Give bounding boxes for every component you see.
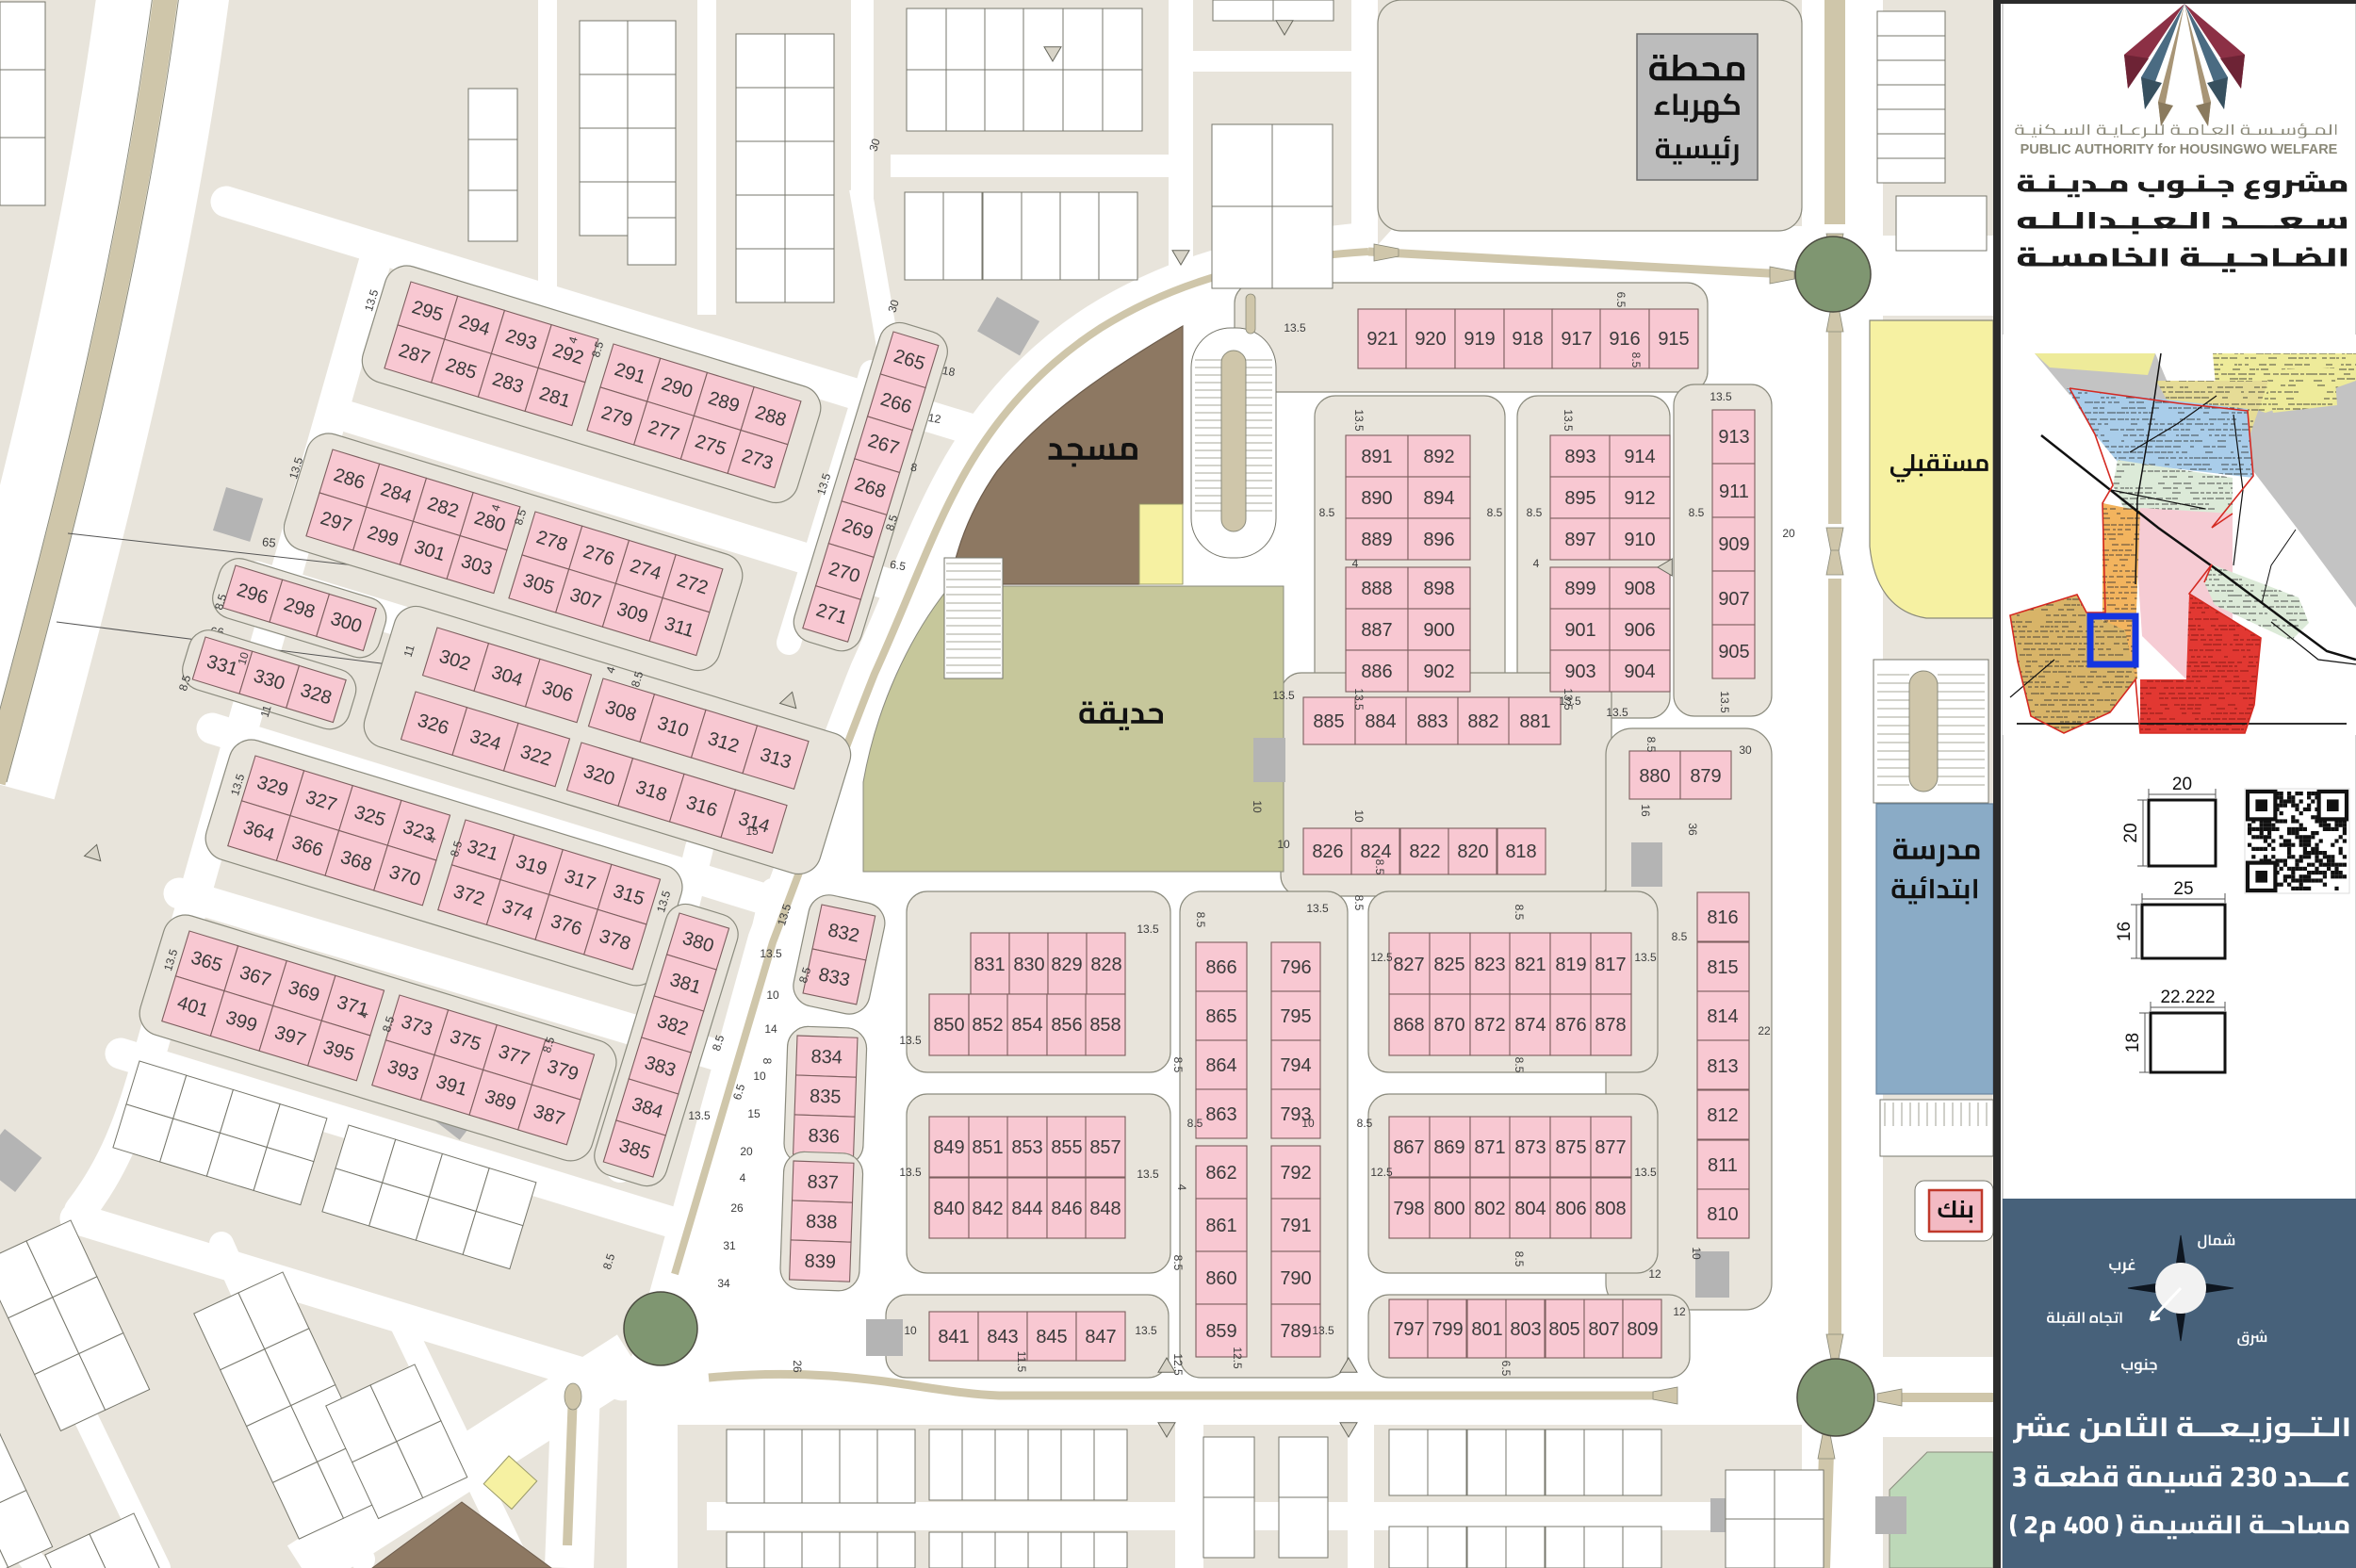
svg-text:825: 825 — [1433, 955, 1464, 975]
svg-text:10: 10 — [1690, 1247, 1703, 1260]
svg-text:846: 846 — [1051, 1199, 1082, 1219]
svg-text:878: 878 — [1595, 1015, 1626, 1036]
svg-text:26: 26 — [791, 1360, 804, 1373]
svg-text:13.5: 13.5 — [1352, 688, 1366, 710]
svg-text:13.5: 13.5 — [1352, 409, 1366, 432]
svg-text:8.5: 8.5 — [1171, 1057, 1185, 1073]
svg-text:802: 802 — [1474, 1199, 1505, 1219]
svg-text:8.5: 8.5 — [1487, 506, 1503, 519]
svg-text:893: 893 — [1564, 447, 1595, 467]
svg-text:815: 815 — [1707, 957, 1738, 978]
svg-text:795: 795 — [1280, 1006, 1311, 1027]
svg-text:20: 20 — [740, 1145, 753, 1158]
svg-text:12.5: 12.5 — [1370, 1166, 1393, 1179]
svg-text:822: 822 — [1409, 841, 1440, 862]
svg-text:897: 897 — [1564, 530, 1595, 550]
svg-text:813: 813 — [1707, 1056, 1738, 1077]
svg-text:844: 844 — [1011, 1199, 1042, 1219]
svg-text:820: 820 — [1457, 841, 1488, 862]
svg-text:854: 854 — [1011, 1015, 1042, 1036]
svg-text:16: 16 — [1639, 804, 1652, 817]
svg-text:915: 915 — [1658, 329, 1689, 350]
svg-text:20: 20 — [2121, 823, 2141, 842]
svg-text:6.5: 6.5 — [889, 558, 907, 574]
svg-text:920: 920 — [1415, 329, 1446, 350]
svg-text:839: 839 — [804, 1250, 836, 1272]
svg-text:13.5: 13.5 — [1634, 1166, 1657, 1179]
svg-text:799: 799 — [1432, 1319, 1463, 1340]
svg-text:13.5: 13.5 — [1137, 1168, 1159, 1181]
svg-text:10: 10 — [904, 1324, 917, 1337]
svg-text:789: 789 — [1280, 1321, 1311, 1342]
svg-text:819: 819 — [1555, 955, 1586, 975]
svg-text:805: 805 — [1548, 1319, 1579, 1340]
svg-text:913: 913 — [1718, 427, 1749, 448]
svg-text:885: 885 — [1313, 711, 1344, 732]
svg-text:858: 858 — [1089, 1015, 1121, 1036]
svg-text:8.5: 8.5 — [1187, 1117, 1203, 1130]
svg-text:874: 874 — [1514, 1015, 1546, 1036]
svg-text:798: 798 — [1393, 1199, 1424, 1219]
svg-text:865: 865 — [1205, 1006, 1236, 1027]
svg-text:828: 828 — [1090, 955, 1121, 975]
svg-text:879: 879 — [1690, 766, 1721, 787]
svg-text:12.5: 12.5 — [1231, 1347, 1244, 1369]
svg-text:882: 882 — [1467, 711, 1498, 732]
svg-text:821: 821 — [1514, 955, 1546, 975]
svg-text:831: 831 — [973, 955, 1005, 975]
svg-text:823: 823 — [1474, 955, 1505, 975]
svg-text:12: 12 — [1648, 1267, 1661, 1281]
svg-text:864: 864 — [1205, 1055, 1236, 1076]
svg-text:809: 809 — [1627, 1319, 1658, 1340]
svg-text:872: 872 — [1474, 1015, 1505, 1036]
svg-text:30: 30 — [1739, 743, 1752, 757]
svg-text:857: 857 — [1089, 1137, 1121, 1158]
svg-text:884: 884 — [1365, 711, 1396, 732]
svg-text:13.5: 13.5 — [688, 1109, 711, 1122]
svg-text:870: 870 — [1433, 1015, 1464, 1036]
svg-text:911: 911 — [1719, 482, 1749, 502]
svg-text:848: 848 — [1089, 1199, 1121, 1219]
svg-text:792: 792 — [1280, 1163, 1311, 1184]
svg-text:817: 817 — [1595, 955, 1626, 975]
svg-text:873: 873 — [1514, 1137, 1546, 1158]
svg-text:12: 12 — [1673, 1305, 1686, 1318]
svg-text:13.5: 13.5 — [899, 1166, 922, 1179]
svg-text:13.5: 13.5 — [1606, 706, 1628, 719]
svg-text:4: 4 — [1352, 557, 1359, 570]
svg-text:896: 896 — [1423, 530, 1454, 550]
svg-text:856: 856 — [1051, 1015, 1082, 1036]
svg-text:891: 891 — [1361, 447, 1392, 467]
svg-text:807: 807 — [1588, 1319, 1619, 1340]
svg-text:919: 919 — [1464, 329, 1495, 350]
svg-text:918: 918 — [1512, 329, 1543, 350]
svg-text:806: 806 — [1555, 1199, 1586, 1219]
svg-text:917: 917 — [1561, 329, 1592, 350]
svg-text:881: 881 — [1519, 711, 1550, 732]
svg-text:13.5: 13.5 — [760, 947, 782, 960]
svg-text:13.5: 13.5 — [1135, 1324, 1157, 1337]
svg-text:14: 14 — [764, 1022, 777, 1036]
svg-text:841: 841 — [938, 1327, 969, 1347]
svg-text:26: 26 — [730, 1201, 744, 1215]
svg-text:847: 847 — [1085, 1327, 1116, 1347]
svg-text:861: 861 — [1205, 1216, 1236, 1236]
svg-text:862: 862 — [1205, 1163, 1236, 1184]
svg-text:855: 855 — [1051, 1137, 1082, 1158]
svg-text:867: 867 — [1393, 1137, 1424, 1158]
svg-text:886: 886 — [1361, 661, 1392, 682]
svg-text:8.5: 8.5 — [1644, 737, 1658, 753]
svg-text:851: 851 — [972, 1137, 1003, 1158]
svg-text:902: 902 — [1423, 661, 1454, 682]
svg-text:13.5: 13.5 — [1634, 951, 1657, 964]
svg-text:894: 894 — [1423, 488, 1454, 509]
svg-text:10: 10 — [1301, 1117, 1315, 1130]
svg-text:901: 901 — [1564, 620, 1595, 641]
svg-text:877: 877 — [1595, 1137, 1626, 1158]
svg-text:8.5: 8.5 — [1357, 1117, 1373, 1130]
svg-text:868: 868 — [1393, 1015, 1424, 1036]
svg-text:804: 804 — [1514, 1199, 1546, 1219]
svg-text:15: 15 — [747, 1107, 761, 1120]
svg-text:837: 837 — [807, 1172, 839, 1194]
svg-text:22: 22 — [1758, 1024, 1771, 1037]
svg-text:812: 812 — [1707, 1105, 1738, 1126]
svg-text:800: 800 — [1433, 1199, 1464, 1219]
svg-text:8.5: 8.5 — [1527, 506, 1543, 519]
svg-text:10: 10 — [753, 1070, 766, 1083]
svg-text:835: 835 — [810, 1086, 842, 1108]
svg-text:816: 816 — [1707, 907, 1738, 928]
svg-text:796: 796 — [1280, 957, 1311, 978]
svg-text:853: 853 — [1011, 1137, 1042, 1158]
svg-text:18: 18 — [941, 364, 957, 379]
svg-text:880: 880 — [1639, 766, 1670, 787]
svg-text:8.5: 8.5 — [1513, 905, 1526, 921]
svg-text:905: 905 — [1718, 642, 1749, 662]
svg-text:883: 883 — [1416, 711, 1448, 732]
svg-text:836: 836 — [808, 1125, 840, 1147]
svg-text:8.5: 8.5 — [1513, 1057, 1526, 1073]
svg-text:852: 852 — [972, 1015, 1003, 1036]
svg-text:11.5: 11.5 — [1015, 1351, 1028, 1373]
svg-text:8.5: 8.5 — [1194, 912, 1207, 928]
svg-text:895: 895 — [1564, 488, 1595, 509]
svg-text:914: 914 — [1624, 447, 1655, 467]
svg-text:4: 4 — [1175, 1184, 1188, 1191]
svg-text:20: 20 — [2172, 775, 2192, 794]
svg-text:890: 890 — [1361, 488, 1392, 509]
svg-text:8.5: 8.5 — [1352, 895, 1366, 911]
svg-text:912: 912 — [1624, 488, 1655, 509]
svg-text:829: 829 — [1051, 955, 1082, 975]
svg-text:849: 849 — [933, 1137, 964, 1158]
svg-text:12.5: 12.5 — [1370, 951, 1393, 964]
svg-text:900: 900 — [1423, 620, 1454, 641]
svg-text:887: 887 — [1361, 620, 1392, 641]
svg-text:10: 10 — [766, 988, 779, 1002]
svg-text:4: 4 — [1533, 557, 1540, 570]
svg-text:8.5: 8.5 — [1629, 352, 1643, 368]
svg-text:834: 834 — [810, 1047, 843, 1069]
svg-text:10: 10 — [1352, 809, 1366, 823]
svg-text:36: 36 — [1686, 823, 1699, 836]
svg-text:840: 840 — [933, 1199, 964, 1219]
svg-text:13.5: 13.5 — [1718, 691, 1731, 713]
svg-text:850: 850 — [933, 1015, 964, 1036]
svg-text:916: 916 — [1609, 329, 1640, 350]
svg-text:876: 876 — [1555, 1015, 1586, 1036]
svg-text:13.5: 13.5 — [1272, 689, 1295, 702]
svg-text:863: 863 — [1205, 1104, 1236, 1125]
svg-text:34: 34 — [717, 1277, 730, 1290]
svg-text:866: 866 — [1205, 957, 1236, 978]
svg-text:8.5: 8.5 — [1513, 1251, 1526, 1267]
svg-text:13.5: 13.5 — [1710, 390, 1732, 403]
svg-text:10: 10 — [1277, 838, 1290, 851]
svg-text:875: 875 — [1555, 1137, 1586, 1158]
svg-text:10: 10 — [1251, 800, 1264, 813]
svg-text:20: 20 — [1782, 527, 1795, 540]
svg-text:814: 814 — [1707, 1006, 1738, 1027]
svg-text:8: 8 — [761, 1058, 774, 1065]
svg-text:25: 25 — [2173, 879, 2193, 899]
svg-text:908: 908 — [1624, 579, 1655, 599]
svg-text:803: 803 — [1510, 1319, 1541, 1340]
svg-text:818: 818 — [1505, 841, 1536, 862]
svg-text:921: 921 — [1366, 329, 1398, 350]
svg-text:8.5: 8.5 — [1319, 506, 1335, 519]
svg-text:830: 830 — [1013, 955, 1044, 975]
svg-text:22.222: 22.222 — [2160, 988, 2215, 1007]
svg-text:8.5: 8.5 — [1373, 859, 1386, 875]
svg-text:PUBLIC AUTHORITY for HOUSINGWO: PUBLIC AUTHORITY for HOUSINGWO WELFARE — [2021, 142, 2338, 157]
svg-text:15: 15 — [745, 825, 759, 838]
svg-text:13.5: 13.5 — [1562, 409, 1575, 432]
svg-text:904: 904 — [1624, 661, 1655, 682]
svg-text:801: 801 — [1471, 1319, 1502, 1340]
svg-text:12: 12 — [927, 411, 942, 426]
svg-text:13.5: 13.5 — [899, 1034, 922, 1047]
svg-text:859: 859 — [1205, 1321, 1236, 1342]
svg-text:907: 907 — [1718, 589, 1749, 610]
svg-text:871: 871 — [1474, 1137, 1505, 1158]
svg-text:808: 808 — [1595, 1199, 1626, 1219]
svg-text:843: 843 — [987, 1327, 1018, 1347]
svg-text:8.5: 8.5 — [1689, 506, 1705, 519]
svg-text:4: 4 — [740, 1171, 746, 1184]
svg-text:65: 65 — [261, 534, 276, 549]
svg-text:898: 898 — [1423, 579, 1454, 599]
svg-text:790: 790 — [1280, 1268, 1311, 1289]
svg-text:827: 827 — [1393, 955, 1424, 975]
svg-text:888: 888 — [1361, 579, 1392, 599]
svg-text:13.5: 13.5 — [1312, 1324, 1334, 1337]
svg-text:892: 892 — [1423, 447, 1454, 467]
svg-text:13.5: 13.5 — [1284, 321, 1306, 335]
svg-text:6.5: 6.5 — [1614, 292, 1628, 308]
svg-text:31: 31 — [723, 1239, 736, 1252]
svg-text:903: 903 — [1564, 661, 1595, 682]
svg-text:13.5: 13.5 — [1306, 902, 1329, 915]
svg-text:8.5: 8.5 — [1171, 1255, 1185, 1271]
svg-text:13.5: 13.5 — [1559, 694, 1581, 708]
svg-text:869: 869 — [1433, 1137, 1464, 1158]
svg-text:906: 906 — [1624, 620, 1655, 641]
svg-text:13.5: 13.5 — [1137, 923, 1159, 936]
svg-text:826: 826 — [1312, 841, 1343, 862]
svg-text:797: 797 — [1393, 1319, 1424, 1340]
svg-text:909: 909 — [1718, 534, 1749, 555]
svg-text:18: 18 — [2123, 1033, 2143, 1053]
svg-text:810: 810 — [1707, 1204, 1738, 1225]
svg-text:16: 16 — [2115, 922, 2135, 941]
svg-text:8.5: 8.5 — [1672, 930, 1688, 943]
svg-text:899: 899 — [1564, 579, 1595, 599]
svg-text:845: 845 — [1036, 1327, 1067, 1347]
svg-text:910: 910 — [1624, 530, 1655, 550]
svg-text:842: 842 — [972, 1199, 1003, 1219]
svg-text:794: 794 — [1280, 1055, 1311, 1076]
svg-text:791: 791 — [1280, 1216, 1311, 1236]
svg-text:6.5: 6.5 — [1499, 1361, 1513, 1377]
svg-text:811: 811 — [1708, 1155, 1738, 1176]
svg-text:889: 889 — [1361, 530, 1392, 550]
svg-text:838: 838 — [806, 1212, 838, 1233]
svg-text:860: 860 — [1205, 1268, 1236, 1289]
